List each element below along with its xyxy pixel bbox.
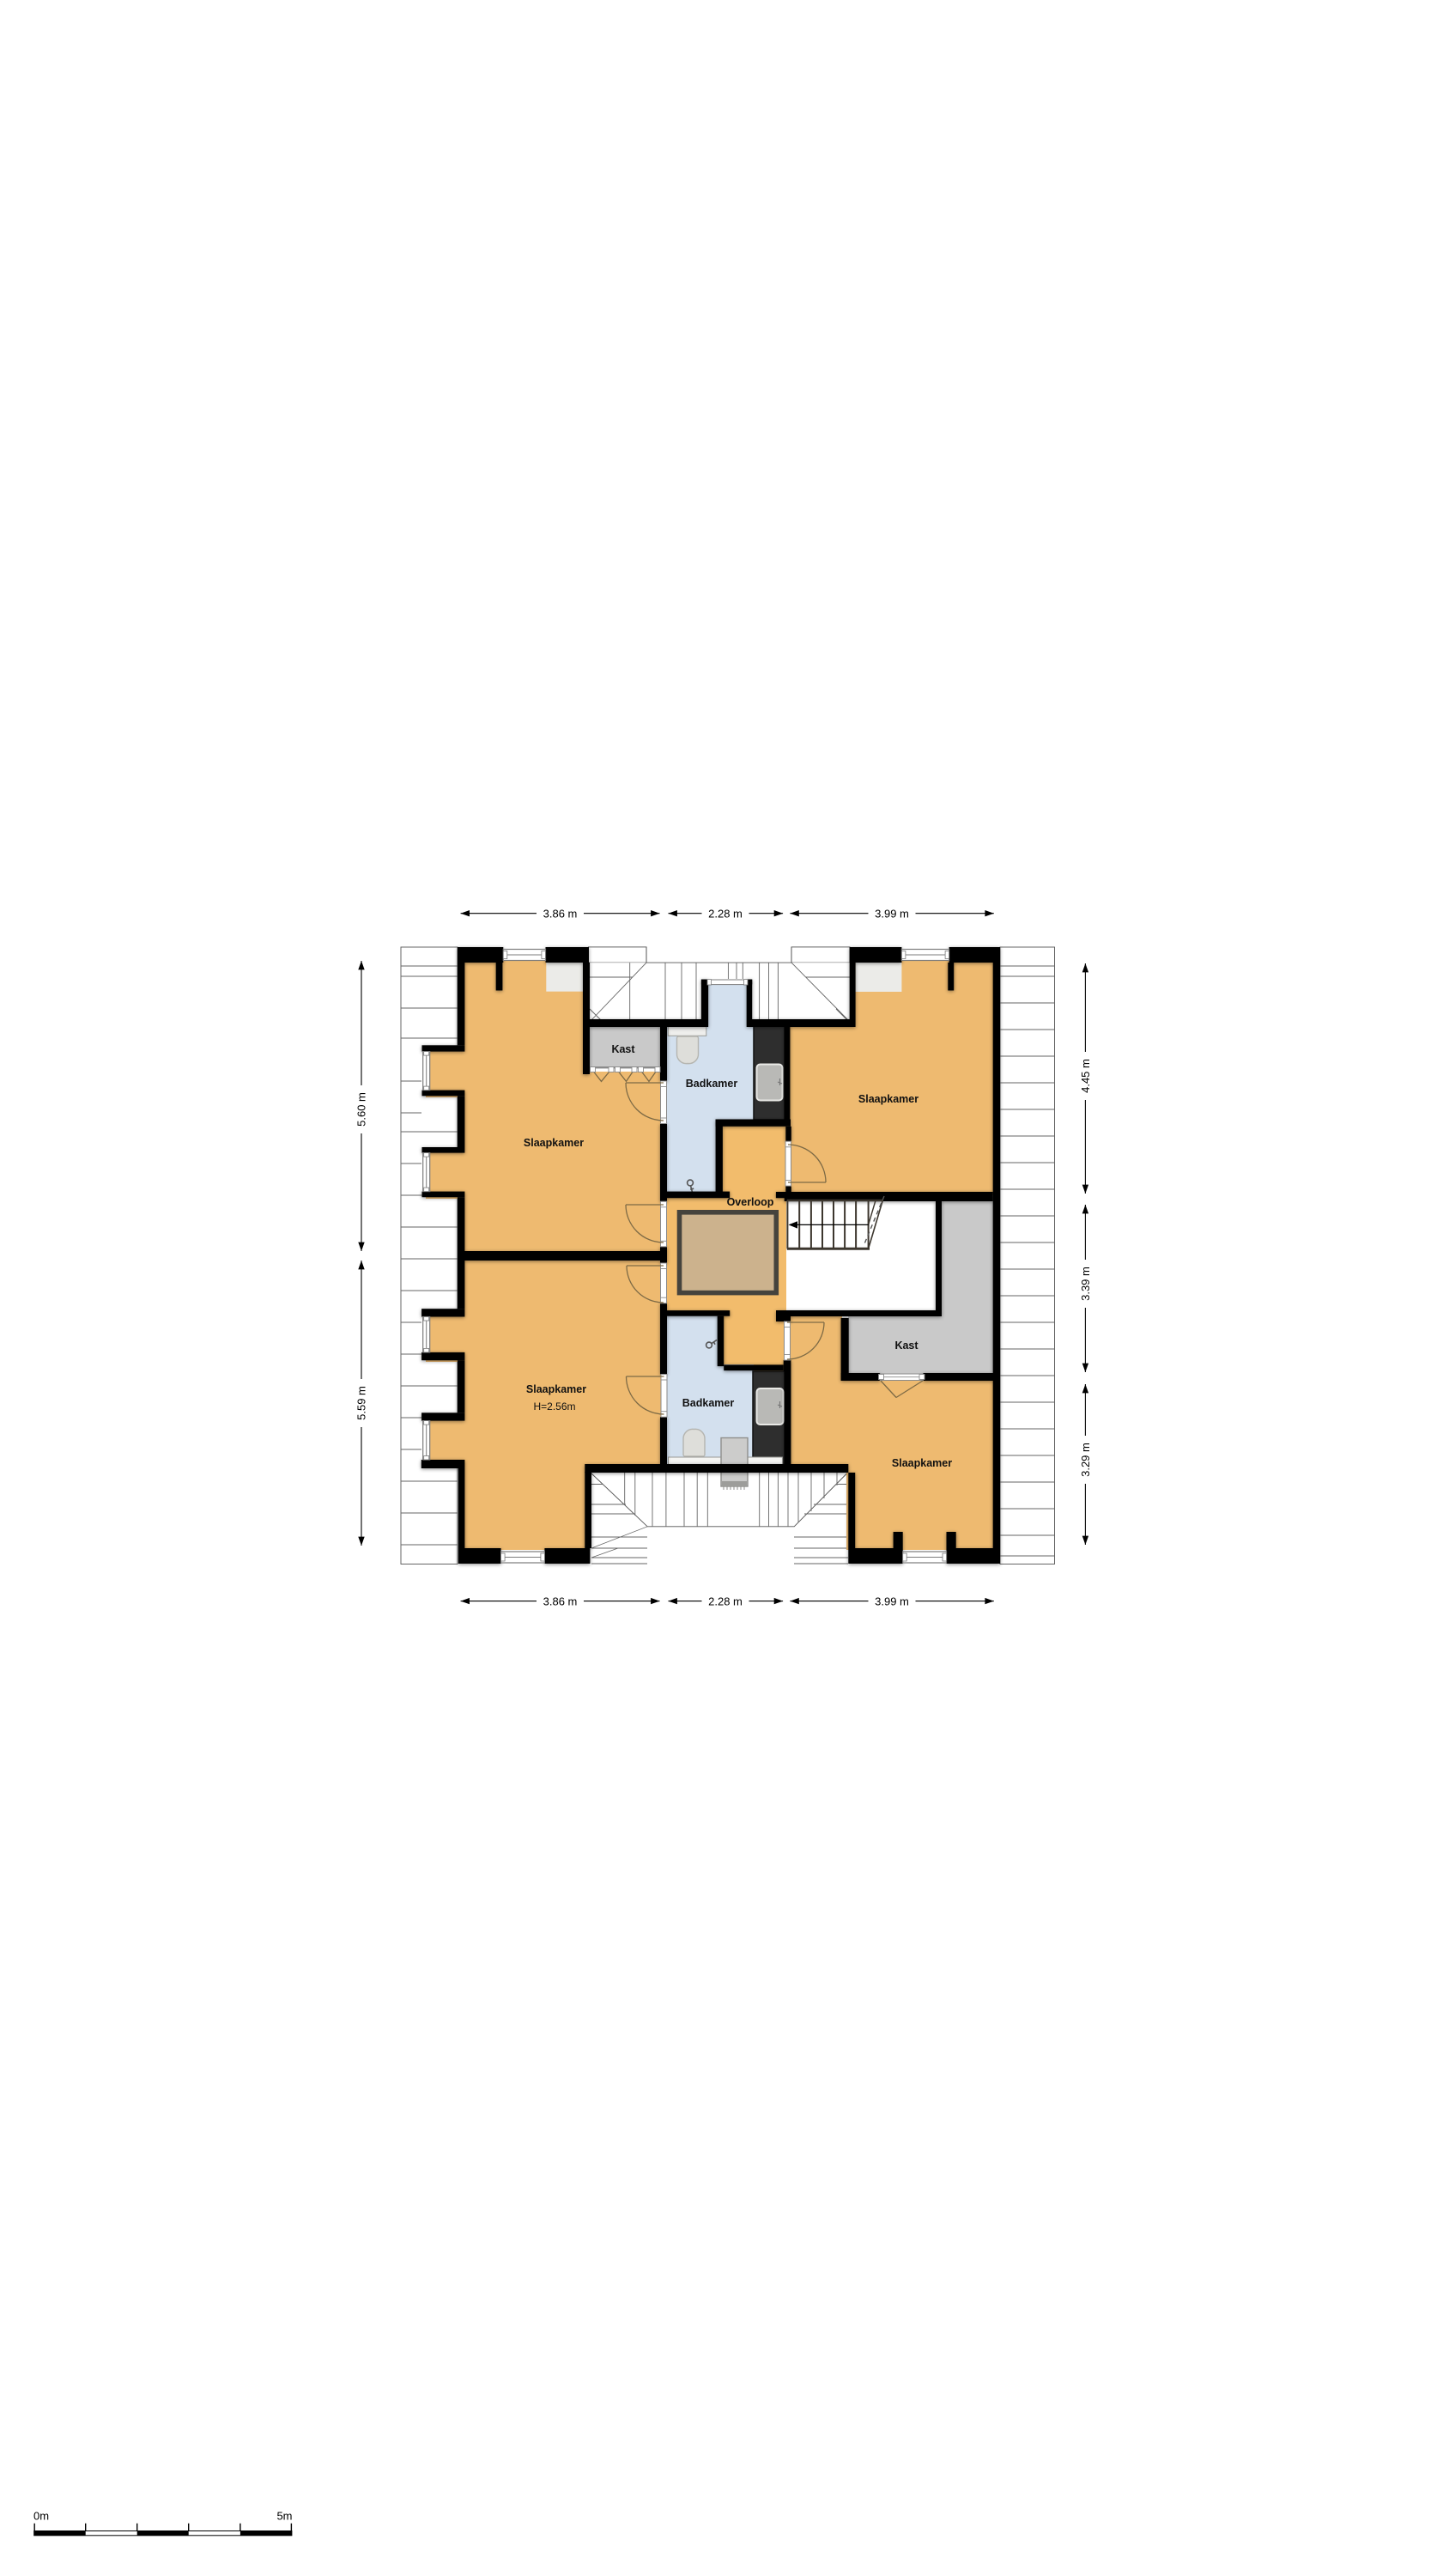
svg-text:3.86 m: 3.86 m [543,1595,578,1607]
svg-text:Kast: Kast [611,1043,635,1055]
svg-text:Slaapkamer: Slaapkamer [858,1093,919,1105]
svg-text:3.39 m: 3.39 m [1079,1267,1092,1301]
svg-text:Kast: Kast [894,1340,919,1352]
svg-text:3.86 m: 3.86 m [543,908,578,920]
svg-text:3.99 m: 3.99 m [875,1595,909,1607]
svg-text:Slaapkamer: Slaapkamer [526,1383,586,1395]
svg-text:3.99 m: 3.99 m [875,908,909,920]
svg-text:0m: 0m [33,2510,49,2523]
svg-text:2.28 m: 2.28 m [708,1595,743,1607]
svg-text:Slaapkamer: Slaapkamer [892,1457,952,1469]
svg-text:5.60 m: 5.60 m [355,1092,368,1127]
svg-text:H=2.56m: H=2.56m [533,1400,575,1413]
svg-text:2.28 m: 2.28 m [708,908,743,920]
svg-text:Overloop: Overloop [727,1196,774,1208]
svg-text:5.59 m: 5.59 m [355,1386,368,1420]
svg-text:5m: 5m [276,2510,292,2523]
svg-text:Badkamer: Badkamer [682,1397,735,1409]
svg-text:Badkamer: Badkamer [686,1078,738,1090]
svg-text:4.45 m: 4.45 m [1079,1059,1092,1093]
svg-text:3.29 m: 3.29 m [1079,1443,1092,1477]
svg-text:Slaapkamer: Slaapkamer [524,1137,584,1149]
